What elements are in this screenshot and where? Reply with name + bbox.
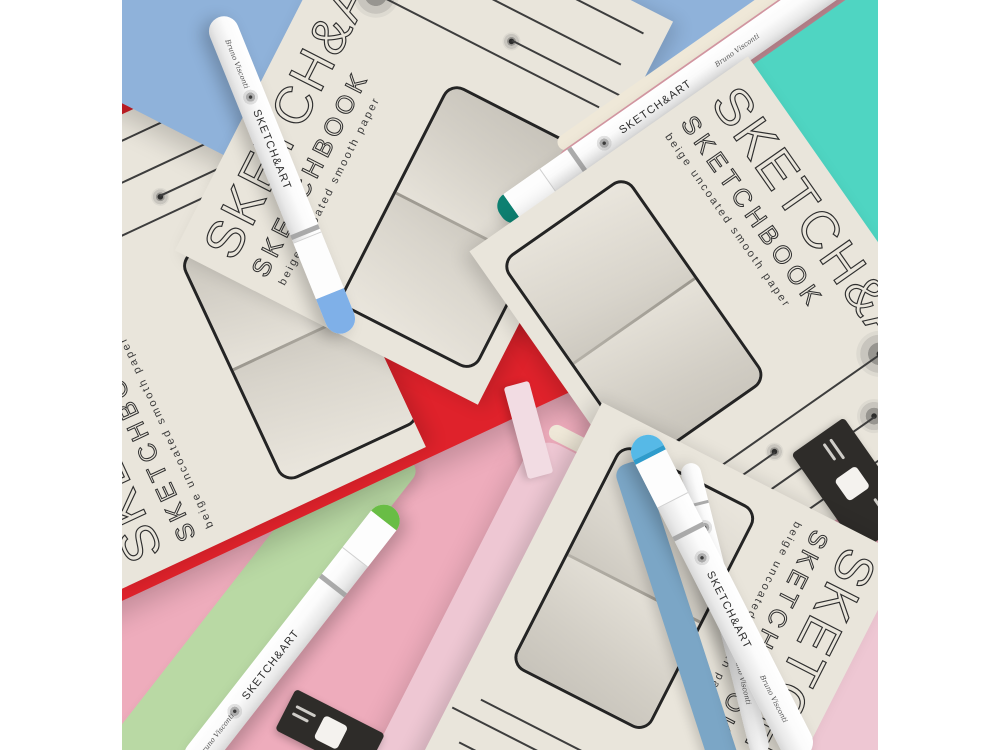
marker-script-text: Bruno Visconti [223,38,250,90]
dandelion-icon [499,29,523,53]
product-photo: SKETCH&ART SKETCHBOOK beige uncoated smo… [122,0,878,750]
page: SKETCH&ART SKETCHBOOK beige uncoated smo… [0,0,1000,750]
dandelion-icon [691,547,713,569]
marker-ring [672,522,705,542]
dandelion-icon [762,439,787,464]
barcode-square [313,715,348,750]
barcode-label [275,689,385,750]
dandelion-icon [148,185,172,209]
marker-ring [319,574,347,598]
label-text-line [873,498,878,518]
dandelion-icon [240,87,261,108]
barcode-square [834,466,870,502]
